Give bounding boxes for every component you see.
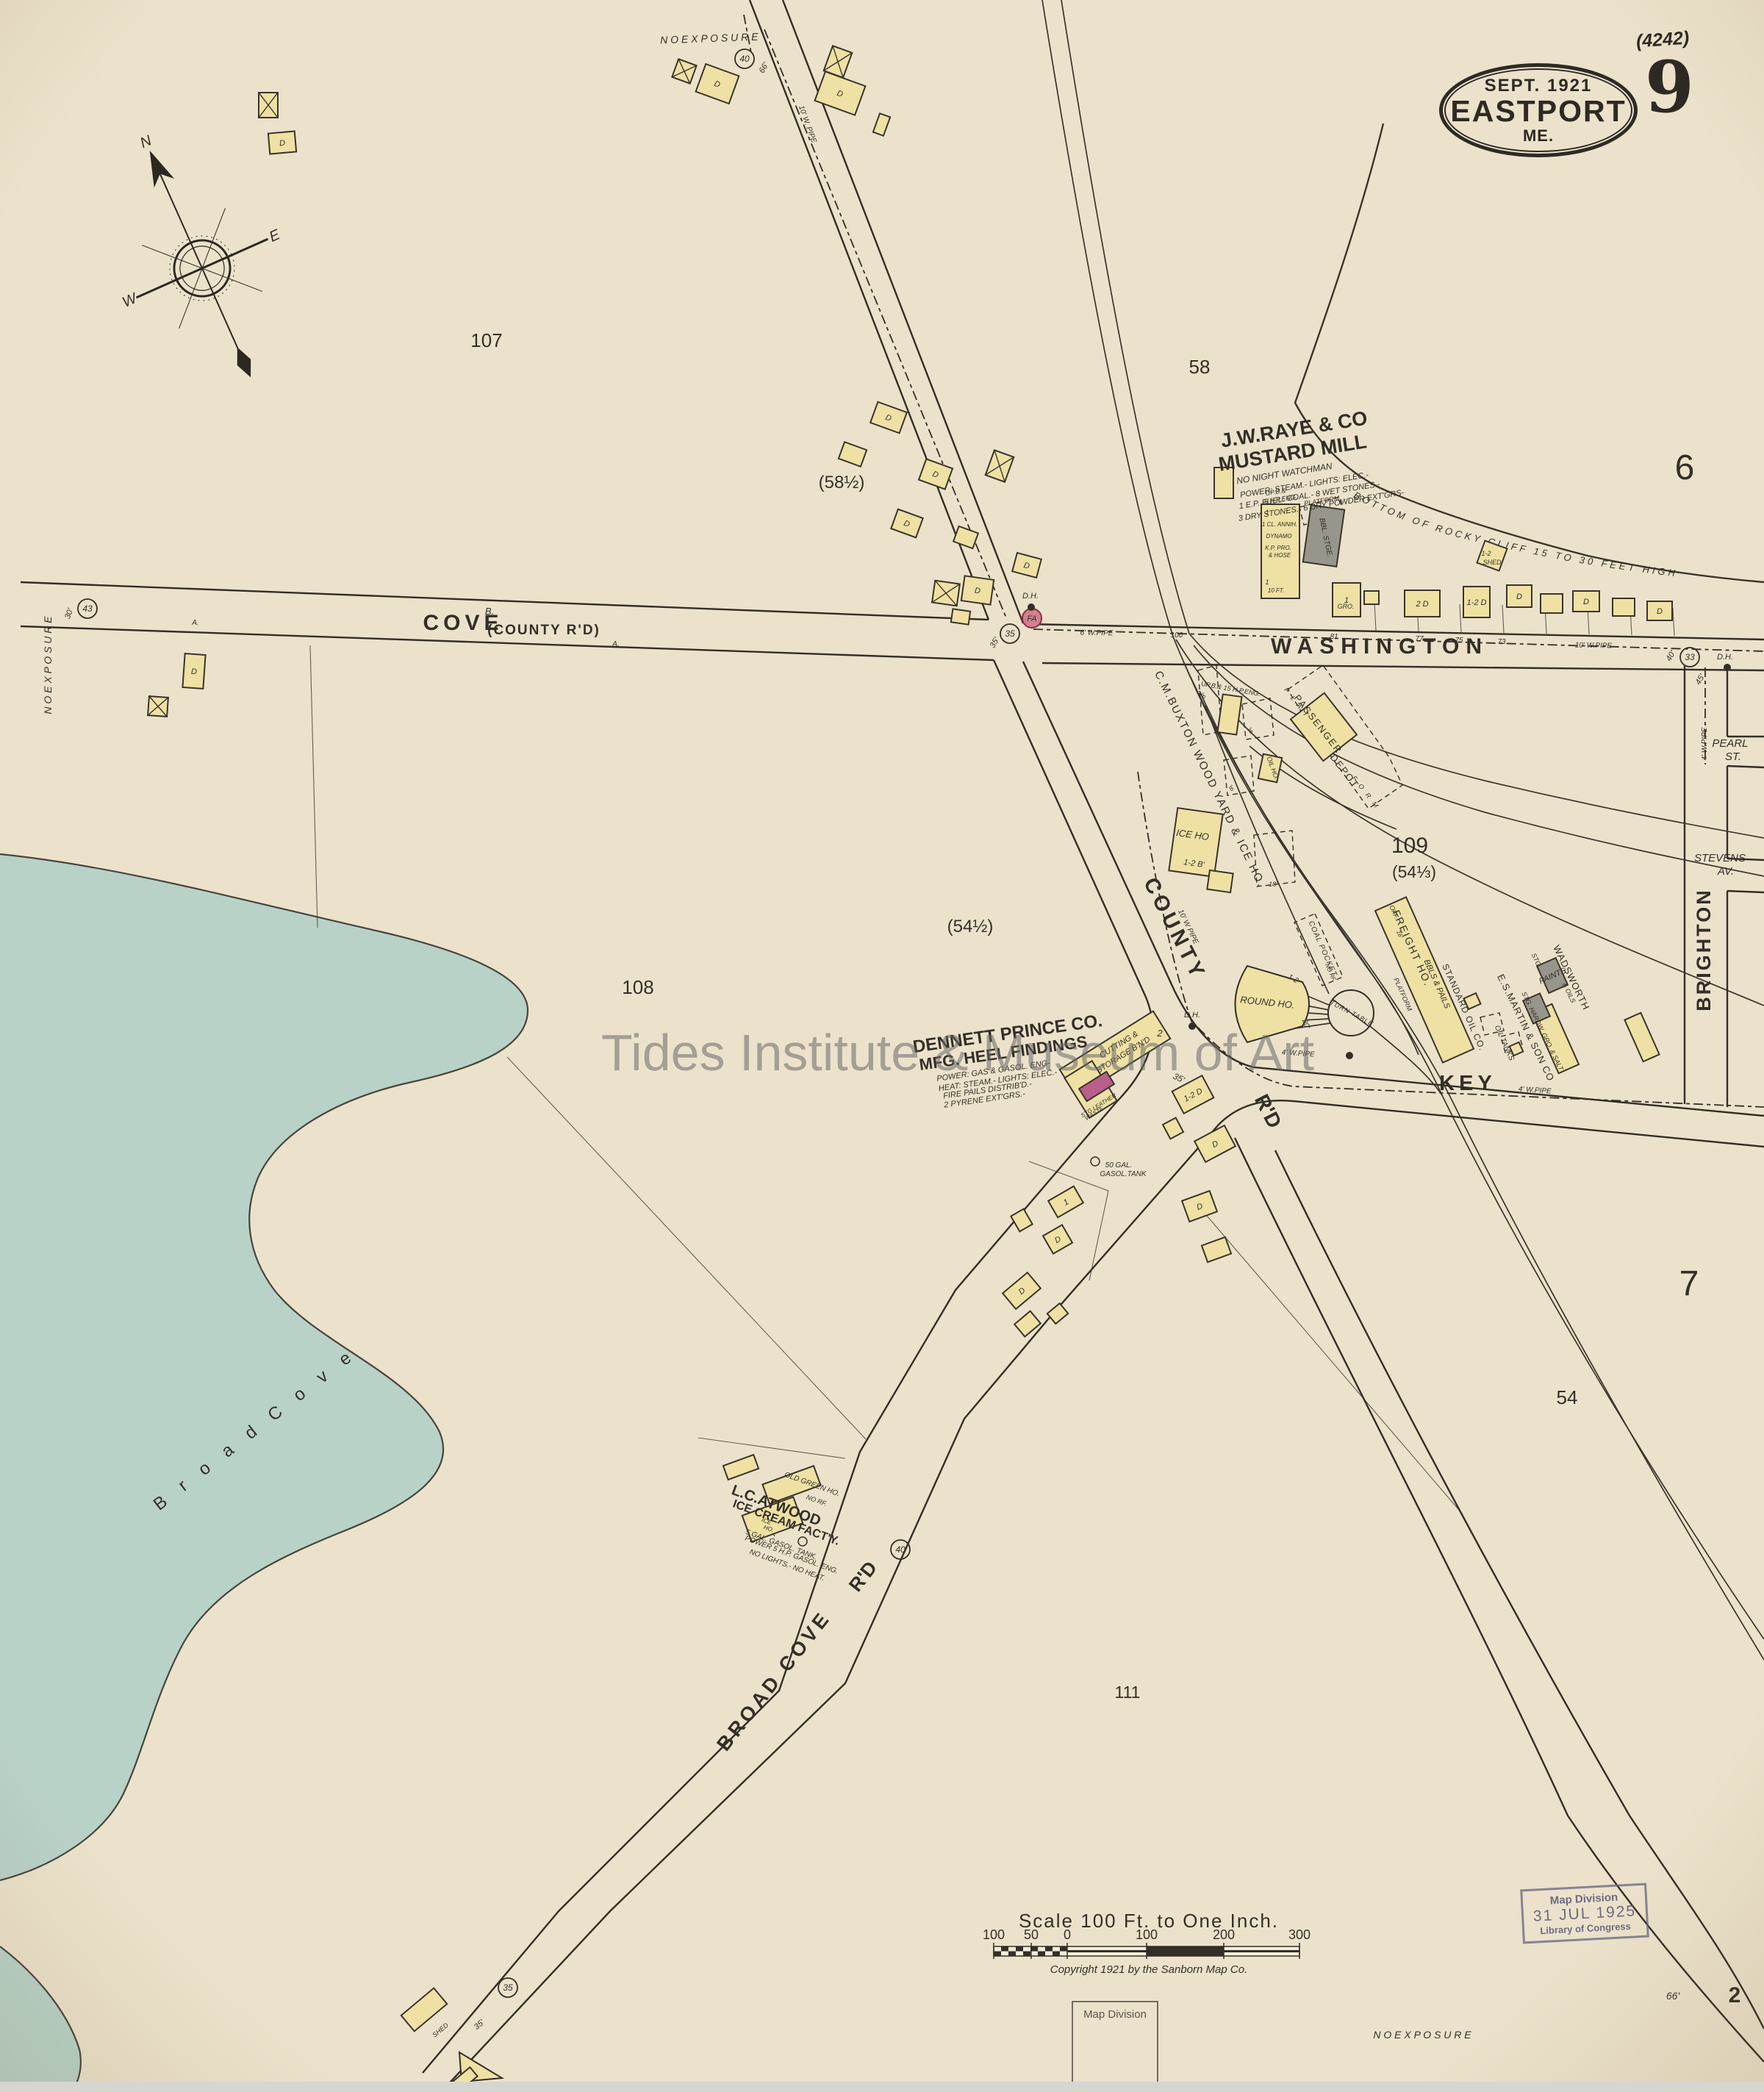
street-county-rd-paren: (COUNTY R'D) xyxy=(487,623,600,638)
scale-tick-label: 100 xyxy=(1136,1927,1158,1942)
frame-building xyxy=(951,609,970,624)
survey-circle-number: 40 xyxy=(739,54,750,64)
block-107: 107 xyxy=(470,329,502,351)
stamp-line: Map Division xyxy=(1083,2008,1147,2021)
frame-building xyxy=(1613,598,1635,616)
building-outline xyxy=(951,609,970,624)
scale-bar-checker xyxy=(1023,1952,1030,1957)
scale-bar-checker xyxy=(1001,1946,1008,1952)
frame-building: 2 D xyxy=(1405,590,1440,617)
hydrant-dot xyxy=(1346,1052,1353,1059)
map-label: DYNAMO xyxy=(1266,533,1291,540)
map-label: ST. xyxy=(1725,751,1741,763)
frame-building xyxy=(1207,870,1233,892)
survey-circle-number: 40 xyxy=(895,1544,906,1555)
map-label: B. xyxy=(485,606,494,617)
building-label: 2 D xyxy=(1415,600,1428,609)
scan-edge xyxy=(0,2082,1764,2092)
map-label: A. xyxy=(191,619,198,627)
scale-tick-label: 300 xyxy=(1288,1927,1311,1942)
frame-building: D xyxy=(182,653,205,689)
no-exposure-bottom: N O E X P O S U R E xyxy=(1373,2029,1471,2041)
map-label: GASOL.TANK xyxy=(1100,1170,1147,1178)
scale-bar-rule xyxy=(1067,1950,1147,1952)
map-label: 6' W.PIPE xyxy=(1080,629,1114,638)
map-label: SHED xyxy=(1482,559,1502,566)
scale-bar-solid xyxy=(1147,1946,1224,1956)
frame-building: 1-2 D xyxy=(1463,587,1490,617)
scale-bar-rule xyxy=(1224,1950,1299,1952)
map-label: 1 xyxy=(1265,578,1269,586)
scale-bar-checker xyxy=(1045,1946,1053,1952)
city-name: EASTPORT xyxy=(1450,96,1626,126)
block-58half: (58½) xyxy=(819,473,865,492)
map-label: 1 CL. ANNIH. xyxy=(1262,521,1297,528)
frame-building: D xyxy=(1573,591,1599,612)
state-name: ME. xyxy=(1523,126,1554,146)
scale-bar-checker xyxy=(1053,1952,1060,1957)
building-label: D xyxy=(1583,598,1589,606)
edition-date: SEPT. 1921 xyxy=(1485,76,1593,96)
scale-tick-label: 100 xyxy=(983,1927,1005,1942)
map-label: 10' W.PIPE xyxy=(1575,642,1613,651)
street-stevens: STEVENS xyxy=(1694,852,1746,864)
map-label: 10 FT. xyxy=(1268,587,1284,594)
building-outline xyxy=(1613,598,1635,616)
hydrant-dot xyxy=(1724,664,1731,671)
map-label: D.H. xyxy=(1184,1011,1200,1020)
map-label: A. xyxy=(612,640,619,648)
map-label: D.H. xyxy=(1717,653,1733,662)
frame-building: D xyxy=(268,131,296,154)
survey-circle-number: 33 xyxy=(1685,652,1695,662)
street-pearl: PEARL xyxy=(1712,737,1748,750)
scale-tick-label: 0 xyxy=(1064,1927,1071,1942)
map-label: 1-2 xyxy=(1481,550,1491,557)
block-108: 108 xyxy=(622,976,653,998)
map-label: AV. xyxy=(1717,865,1734,878)
street-key: KEY xyxy=(1439,1072,1496,1095)
survey-circle-number: 35 xyxy=(1005,628,1015,639)
map-label: & HOSE xyxy=(1269,552,1291,559)
block-109: 109 xyxy=(1391,834,1428,858)
scale-bar-checker xyxy=(1008,1952,1016,1957)
map-label: 100 xyxy=(1171,631,1183,640)
sheet-ref-7: 7 xyxy=(1679,1264,1699,1303)
map-label: D.H. xyxy=(1022,592,1039,601)
street-brighton: BRIGHTON xyxy=(1693,888,1715,1011)
map-division-stamp: Map Division Library of Congress xyxy=(1072,2001,1158,2092)
stable-building xyxy=(259,93,278,118)
building-outline xyxy=(1207,870,1233,892)
map-label: 1 xyxy=(1265,509,1269,516)
scale-tick-label: 50 xyxy=(1024,1927,1039,1942)
fire-alarm-marker: FA xyxy=(1022,609,1041,628)
stable-building xyxy=(932,581,960,606)
fire-alarm-label: FA xyxy=(1027,615,1036,623)
building-label: 1-2 D xyxy=(1467,598,1487,607)
building-outline xyxy=(1364,591,1379,604)
sanborn-map-sheet: BOTTOM OF ROCKY CLIFF 15 TO 30 FEET HIGH… xyxy=(0,0,1764,2092)
scale-copyright: Copyright 1921 by the Sanborn Map Co. xyxy=(1050,1963,1248,1976)
scale-bar-checker xyxy=(1038,1952,1045,1957)
map-label: 75 xyxy=(1455,637,1463,645)
watermark: Tides Institute & Museum of Art xyxy=(601,1023,1314,1082)
frame-building: D xyxy=(1507,585,1532,607)
library-of-congress-stamp: Map Division 31 JUL 1925 Library of Cong… xyxy=(1520,1883,1649,1944)
scale-bar-checker xyxy=(1016,1946,1023,1952)
map-label: 2 xyxy=(1729,1983,1741,2007)
block-58: 58 xyxy=(1189,356,1211,378)
sheet-ref-6: 6 xyxy=(1675,448,1695,487)
building-label: D xyxy=(279,139,286,148)
building-label: D xyxy=(191,667,198,677)
map-label: 66' xyxy=(1666,1990,1681,2002)
title-oval: SEPT. 1921 EASTPORT ME. xyxy=(1439,63,1638,157)
map-label: 81 xyxy=(1330,633,1338,641)
frame-building xyxy=(1541,594,1563,613)
no-exposure-left: N O E X P O S U R E xyxy=(42,616,54,714)
survey-circle-number: 43 xyxy=(82,603,93,614)
building-label: D xyxy=(1657,607,1663,616)
building-outline xyxy=(1541,594,1563,613)
map-label: K.P. PRO. xyxy=(1265,545,1291,551)
frame-building: D xyxy=(961,576,994,604)
map-label: 77 xyxy=(1415,635,1424,643)
block-54half: (54½) xyxy=(947,917,994,936)
scale-tick-label: 200 xyxy=(1213,1927,1235,1942)
frame-building xyxy=(1364,591,1379,604)
map-label: 73 xyxy=(1497,638,1506,646)
map-label: (54⅓) xyxy=(1392,862,1436,881)
frame-building: D xyxy=(1647,601,1672,620)
stable-building xyxy=(148,696,168,717)
block-54: 54 xyxy=(1557,1386,1578,1408)
building-label: D xyxy=(974,586,981,595)
map-label: 50 GAL. xyxy=(1105,1161,1133,1169)
building-label: D xyxy=(1516,592,1522,601)
frame-building: 1 xyxy=(1333,583,1360,617)
map-label: 18' xyxy=(1269,881,1277,888)
scale-bar-checker xyxy=(994,1952,1001,1957)
scale-bar-checker xyxy=(1060,1946,1067,1952)
block-111: 111 xyxy=(1115,1683,1141,1702)
survey-circle-number: 35 xyxy=(503,1982,513,1993)
hydrant-dot xyxy=(1028,603,1035,611)
map-label: GRO. xyxy=(1337,603,1354,610)
map-label: 4' W.PIPE xyxy=(1701,727,1709,760)
sheet-number: 9 xyxy=(1645,46,1694,129)
